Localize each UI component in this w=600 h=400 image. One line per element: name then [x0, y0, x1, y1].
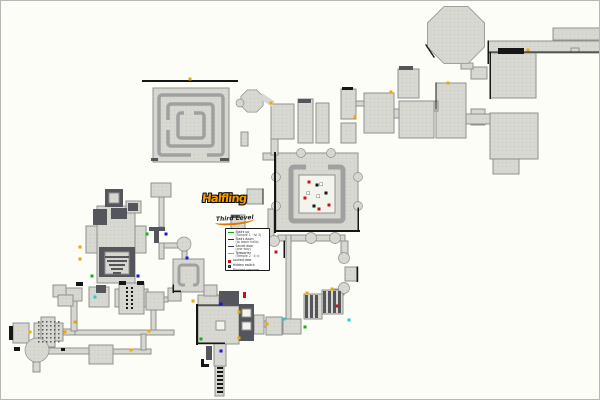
map-bar	[342, 87, 353, 90]
map-marker-c	[348, 319, 351, 322]
map-ring-gap	[191, 150, 207, 157]
map-floor-dot	[38, 329, 40, 331]
map-room-dark	[206, 346, 212, 360]
map-round-room	[297, 149, 306, 158]
map-room	[553, 28, 600, 40]
map-bar	[113, 272, 121, 274]
map-bar	[231, 215, 240, 218]
map-floor-dot	[46, 333, 48, 335]
map-room	[247, 189, 263, 204]
map-marker-y	[306, 292, 309, 295]
map-bar	[338, 291, 341, 313]
map-room	[109, 193, 119, 203]
map-room	[399, 101, 434, 138]
map-marker-g	[146, 233, 149, 236]
map-floor-dot	[131, 295, 133, 297]
map-bar	[217, 379, 223, 381]
map-bar	[9, 326, 13, 340]
map-marker-b	[186, 257, 189, 260]
map-marker-y	[79, 258, 82, 261]
map-bar	[498, 48, 524, 54]
map-room	[164, 243, 178, 248]
map-round-room	[330, 233, 341, 244]
map-floor-dot	[46, 321, 48, 323]
map-room	[490, 53, 536, 98]
map-floor-dot	[58, 337, 60, 339]
map-marker-r	[304, 197, 307, 200]
map-floor-dot	[38, 333, 40, 335]
map-floor-dot	[131, 303, 133, 305]
map-bar	[119, 281, 126, 285]
map-room	[214, 344, 226, 366]
map-room	[146, 292, 164, 310]
map-room-dark	[154, 231, 159, 243]
map-floor-dot	[58, 329, 60, 331]
map-marker-r	[275, 251, 278, 254]
map-room-dark	[93, 209, 107, 225]
map-bar	[328, 291, 331, 313]
map-room	[283, 319, 301, 334]
map-room	[436, 83, 466, 138]
map-round-room	[177, 237, 191, 251]
map-room	[490, 113, 538, 159]
map-marker-y	[238, 311, 241, 314]
map-room	[471, 67, 487, 79]
map-marker-y	[331, 288, 334, 291]
map-floor-dot	[126, 295, 128, 297]
map-floor-dot	[58, 325, 60, 327]
map-room	[394, 109, 399, 118]
map-round-room	[327, 149, 336, 158]
map-room	[115, 289, 119, 307]
map-bar	[107, 260, 127, 262]
legend-label: Locked door	[233, 259, 252, 262]
map-room	[341, 89, 356, 119]
map-room-dark	[399, 66, 413, 70]
map-room-dark	[298, 99, 311, 103]
map-legend: Stairs up(Temple 1 · lvl 2)Stairs down(t…	[225, 228, 270, 271]
map-room	[135, 226, 146, 253]
legend-swatch-line	[228, 246, 234, 248]
map-room	[266, 317, 282, 335]
map-marker-r	[328, 204, 331, 207]
legend-swatch-square-h: H	[228, 265, 231, 268]
map-floor-dot	[46, 337, 48, 339]
map-bar	[76, 282, 83, 286]
map-marker-y	[29, 331, 32, 334]
map-room	[241, 132, 248, 146]
map-floor-dot	[131, 307, 133, 309]
map-marker-y	[354, 116, 357, 119]
map-room	[271, 104, 294, 139]
map-room	[398, 69, 419, 98]
map-marker-y	[79, 246, 82, 249]
map-marker-y	[189, 78, 192, 81]
map-marker-k	[316, 184, 319, 187]
map-bar	[333, 291, 336, 313]
map-bar	[201, 364, 209, 367]
map-room	[105, 252, 129, 274]
map-room	[242, 309, 251, 317]
map-floor-dot	[38, 321, 40, 323]
map-round-room	[236, 99, 244, 107]
map-floor-dot	[42, 325, 44, 327]
map-floor-dot	[126, 299, 128, 301]
map-floor-dot	[50, 337, 52, 339]
map-bar	[220, 158, 229, 161]
map-bar	[323, 291, 326, 313]
map-bar	[305, 295, 308, 318]
map-room	[48, 348, 89, 354]
map-marker-y	[148, 330, 151, 333]
map-floor-dot	[58, 321, 60, 323]
map-marker-b	[137, 275, 140, 278]
map-floor-dot	[54, 341, 56, 343]
map-room	[141, 334, 146, 350]
map-floor-dot	[50, 333, 52, 335]
map-room	[13, 323, 29, 343]
legend-swatch-line	[228, 239, 234, 241]
map-bar	[243, 292, 246, 298]
legend-entry: Blocked passage	[228, 269, 268, 271]
map-bar	[310, 295, 313, 318]
map-marker-y	[74, 321, 77, 324]
map-floor-dot	[46, 329, 48, 331]
map-round-room	[269, 236, 280, 247]
map-room	[159, 197, 164, 227]
map-floor-dot	[126, 303, 128, 305]
map-floor-dot	[42, 337, 44, 339]
map-room	[164, 297, 168, 302]
map-floor-dot	[54, 321, 56, 323]
map-ring-gap	[185, 282, 193, 287]
map-bar	[217, 383, 223, 385]
legend-swatch-square	[228, 260, 231, 263]
map-floor-dot	[42, 341, 44, 343]
map-bar	[217, 367, 223, 369]
map-octagon-room	[427, 6, 484, 63]
map-floor-dot	[54, 337, 56, 339]
map-marker-g	[200, 338, 203, 341]
map-marker-w	[317, 195, 320, 198]
map-floor-dot	[126, 307, 128, 309]
map-marker-y	[270, 102, 273, 105]
map-bar	[151, 158, 158, 161]
map-room	[466, 114, 490, 124]
map-bar	[217, 387, 223, 389]
map-marker-y	[64, 331, 67, 334]
map-room	[86, 226, 97, 253]
map-floor-dot	[38, 337, 40, 339]
map-floor-dot	[126, 291, 128, 293]
map-floor-dot	[54, 325, 56, 327]
map-room	[493, 159, 519, 174]
map-room	[364, 93, 394, 133]
map-bar	[61, 348, 65, 351]
map-bar	[217, 375, 223, 377]
map-floor-dot	[54, 329, 56, 331]
map-ring-gap	[165, 120, 172, 130]
map-room	[151, 310, 156, 331]
map-marker-w	[307, 192, 310, 195]
map-floor-dot	[50, 325, 52, 327]
map-marker-g	[91, 275, 94, 278]
map-marker-g	[304, 326, 307, 329]
map-room	[151, 183, 171, 197]
map-room	[345, 267, 358, 281]
map-marker-r	[336, 305, 339, 308]
map-marker-y	[130, 349, 133, 352]
map-room	[341, 123, 356, 143]
map-round-room	[25, 338, 49, 362]
map-room	[242, 322, 251, 330]
map-marker-b	[165, 233, 168, 236]
map-octagon-room	[241, 90, 263, 112]
map-room-dark	[149, 227, 165, 231]
map-ring-gap	[184, 110, 194, 116]
map-bar	[14, 347, 20, 351]
legend-swatch-line	[228, 253, 234, 255]
map-marker-k	[313, 205, 316, 208]
map-room	[254, 315, 264, 334]
map-floor-dot	[42, 329, 44, 331]
map-bar	[105, 256, 129, 258]
legend-swatch-square	[228, 270, 231, 271]
legend-label: Hidden switch	[233, 264, 255, 267]
map-canvas	[1, 1, 600, 400]
legend-swatch-line	[228, 232, 234, 234]
map-marker-y	[192, 300, 195, 303]
map-marker-y	[390, 91, 393, 94]
map-marker-k	[325, 192, 328, 195]
map-floor-dot	[126, 287, 128, 289]
map-marker-r	[318, 208, 321, 211]
map-floor-dot	[58, 341, 60, 343]
map-floor-dot	[50, 329, 52, 331]
map-room	[216, 321, 225, 330]
map-bar	[217, 391, 223, 393]
map-marker-c	[283, 318, 286, 321]
map-floor-dot	[46, 341, 48, 343]
map-bar	[109, 264, 125, 266]
map-marker-y	[238, 337, 241, 340]
map-room	[159, 243, 164, 259]
map-floor-dot	[42, 321, 44, 323]
map-marker-y	[266, 323, 269, 326]
map-marker-y	[527, 49, 530, 52]
map-floor-dot	[58, 333, 60, 335]
map-bar	[137, 281, 144, 285]
map-marker-b	[220, 350, 223, 353]
map-room	[316, 103, 329, 143]
map-round-room	[354, 173, 363, 182]
map-bar	[217, 371, 223, 373]
map-floor-dot	[131, 291, 133, 293]
legend-label: Blocked passage	[233, 269, 259, 271]
map-round-room	[339, 253, 350, 264]
dungeon-map-image: Halfling Third Level Stairs up(Temple 1 …	[0, 0, 600, 400]
map-floor-dot	[42, 333, 44, 335]
map-room	[204, 285, 217, 296]
map-ring-gap	[306, 163, 328, 170]
map-room-dark	[96, 285, 106, 293]
map-marker-c	[94, 296, 97, 299]
map-room	[89, 345, 113, 364]
map-marker-y	[447, 82, 450, 85]
map-round-room	[306, 233, 317, 244]
map-room	[33, 362, 40, 372]
map-floor-dot	[131, 287, 133, 289]
map-room-dark	[128, 203, 138, 211]
map-floor-dot	[54, 333, 56, 335]
map-floor-dot	[50, 341, 52, 343]
map-room	[58, 295, 73, 306]
map-bar	[111, 268, 123, 270]
map-bar	[315, 295, 318, 318]
map-floor-dot	[38, 341, 40, 343]
map-room	[286, 235, 291, 319]
map-room	[198, 295, 219, 306]
map-marker-r	[308, 181, 311, 184]
map-floor-dot	[50, 321, 52, 323]
map-room	[299, 175, 335, 213]
map-room	[356, 101, 364, 106]
map-room-dark	[111, 208, 127, 219]
map-room	[298, 99, 313, 143]
map-marker-w	[320, 183, 323, 186]
map-floor-dot	[46, 325, 48, 327]
map-floor-dot	[131, 299, 133, 301]
map-marker-b	[220, 303, 223, 306]
map-floor-dot	[38, 325, 40, 327]
